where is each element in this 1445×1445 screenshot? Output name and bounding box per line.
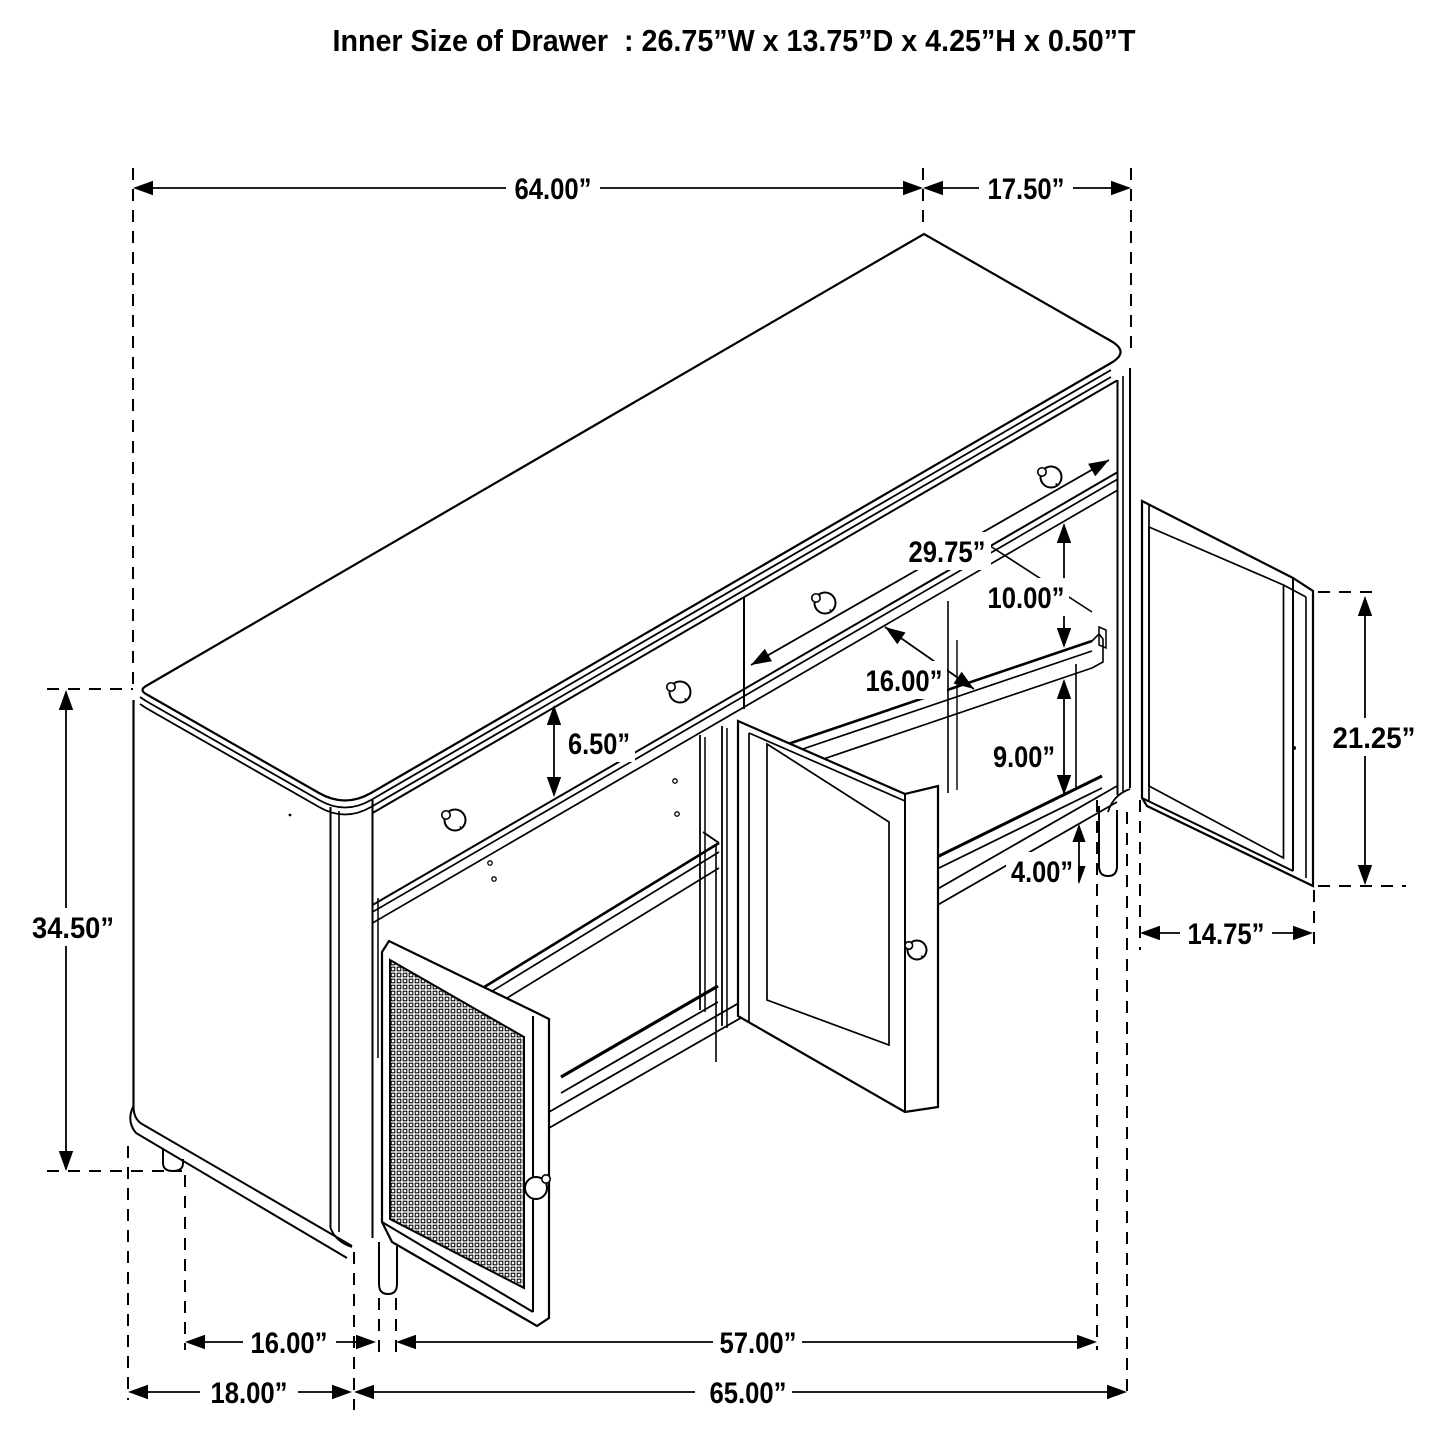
svg-text:34.50”: 34.50” [32, 912, 114, 945]
svg-text:6.50”: 6.50” [568, 728, 630, 761]
svg-text:64.00”: 64.00” [515, 173, 592, 206]
svg-text:4.00”: 4.00” [1011, 856, 1073, 889]
svg-text:65.00”: 65.00” [710, 1377, 787, 1410]
svg-text:16.00”: 16.00” [251, 1327, 328, 1360]
svg-text:21.25”: 21.25” [1333, 722, 1416, 755]
svg-text:57.00”: 57.00” [720, 1327, 797, 1360]
svg-text:9.00”: 9.00” [993, 741, 1055, 774]
svg-text:16.00”: 16.00” [866, 665, 943, 698]
svg-text:10.00”: 10.00” [988, 582, 1065, 615]
svg-text:14.75”: 14.75” [1188, 918, 1265, 951]
svg-text:29.75”: 29.75” [909, 536, 986, 569]
svg-text:18.00”: 18.00” [211, 1377, 288, 1410]
svg-text:17.50”: 17.50” [988, 173, 1065, 206]
svg-text:Inner Size of Drawer : 26.75”: Inner Size of Drawer : 26.75”W x 13.75”D… [333, 23, 1136, 58]
